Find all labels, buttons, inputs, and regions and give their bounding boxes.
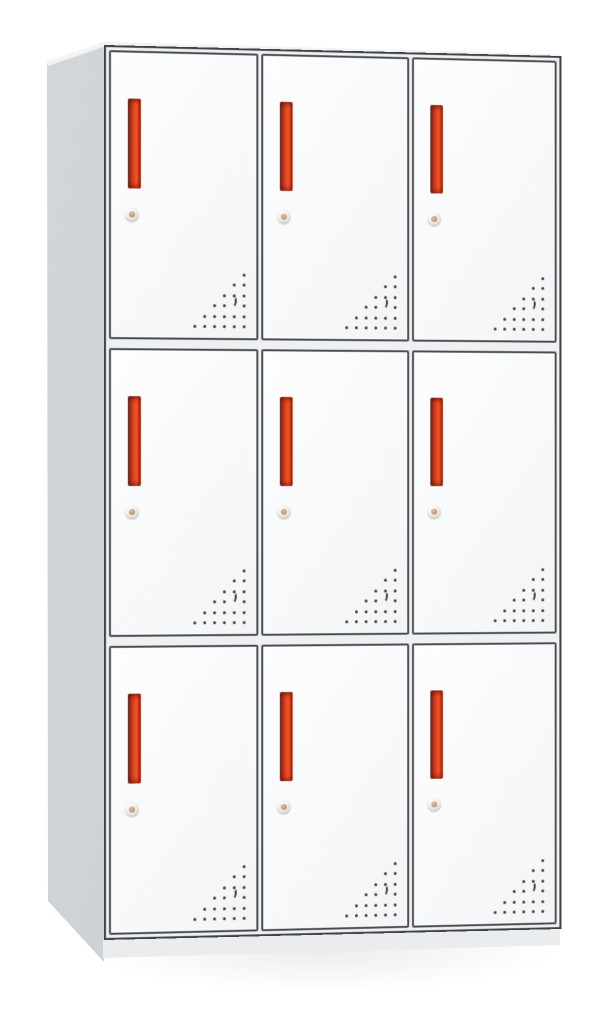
locker-door-r3-c2 [262, 643, 409, 931]
locker-door-r3-c3 [412, 642, 557, 927]
vent-holes [193, 865, 246, 922]
keyhole-lock [427, 797, 440, 811]
vent-holes [493, 277, 544, 332]
vent-dot [522, 307, 525, 310]
vent-dot [393, 579, 396, 582]
vent-crescent-hole [529, 299, 536, 310]
door-handle [430, 398, 443, 486]
vent-dot [513, 609, 516, 612]
keyhole-pin [129, 509, 135, 515]
vent-dot [393, 569, 396, 572]
vent-dot [223, 315, 226, 318]
keyhole-pin [431, 509, 437, 515]
vent-dot [532, 328, 535, 331]
vent-dot [243, 325, 246, 328]
vent-dot [233, 876, 236, 879]
vent-dot [393, 610, 396, 613]
vent-dot [223, 600, 226, 603]
vent-dot [355, 326, 358, 329]
locker-door-r2-c2 [262, 349, 409, 636]
locker-door-r3-c1 [109, 645, 259, 935]
vent-dot [503, 328, 506, 331]
vent-dot [393, 872, 396, 875]
vent-dot [243, 611, 246, 614]
vent-dot [223, 886, 226, 889]
vent-dot [541, 879, 544, 882]
vent-dot [374, 903, 377, 906]
vent-dot [541, 588, 544, 591]
vent-dot [384, 610, 387, 613]
vent-holes [344, 862, 396, 918]
vent-dot [393, 327, 396, 330]
vent-dot [243, 600, 246, 603]
vent-dot [513, 599, 516, 602]
vent-holes [493, 568, 544, 623]
vent-dot [503, 911, 506, 914]
vent-dot [393, 286, 396, 289]
vent-dot [541, 578, 544, 581]
door-handle [280, 692, 293, 781]
vent-dot [213, 325, 216, 328]
keyhole-pin [281, 804, 287, 810]
vent-dot [532, 287, 535, 290]
vent-dot [513, 890, 516, 893]
vent-dot [243, 569, 246, 572]
vent-dot [243, 865, 246, 868]
vent-holes [193, 569, 246, 625]
vent-dot [213, 917, 216, 920]
vent-dot [393, 275, 396, 278]
vent-dot [374, 610, 377, 613]
vent-dot [503, 901, 506, 904]
vent-dot [194, 325, 197, 328]
vent-dot [541, 910, 544, 913]
vent-dot [522, 910, 525, 913]
locker-door-r2-c3 [412, 350, 557, 634]
vent-dot [393, 589, 396, 592]
vent-crescent-hole [381, 298, 388, 309]
vent-dot [532, 318, 535, 321]
vent-dot [243, 284, 246, 287]
vent-dot [223, 325, 226, 328]
vent-dot [364, 914, 367, 917]
vent-dot [374, 589, 377, 592]
vent-dot [522, 900, 525, 903]
vent-dot [345, 326, 348, 329]
vent-dot [364, 620, 367, 623]
vent-dot [223, 907, 226, 910]
vent-dot [364, 904, 367, 907]
vent-dot [364, 600, 367, 603]
vent-dot [374, 316, 377, 319]
vent-dot [541, 568, 544, 571]
vent-dot [243, 917, 246, 920]
vent-dot [213, 304, 216, 307]
keyhole-lock [125, 207, 139, 221]
vent-holes [344, 569, 396, 624]
vent-dot [541, 869, 544, 872]
vent-dot [384, 873, 387, 876]
locker-door-r2-c1 [109, 348, 259, 637]
vent-dot [513, 911, 516, 914]
vent-dot [233, 907, 236, 910]
cabinet-front-face [104, 45, 561, 940]
vent-dot [233, 284, 236, 287]
door-handle [280, 102, 293, 191]
vent-dot [513, 619, 516, 622]
vent-dot [393, 883, 396, 886]
vent-dot [541, 619, 544, 622]
vent-dot [393, 296, 396, 299]
keyhole-pin [281, 214, 287, 220]
vent-dot [522, 328, 525, 331]
vent-dot [355, 610, 358, 613]
vent-dot [213, 621, 216, 624]
vent-dot [355, 620, 358, 623]
vent-dot [233, 580, 236, 583]
door-handle [280, 397, 293, 486]
vent-dot [541, 900, 544, 903]
vent-dot [541, 859, 544, 862]
vent-dot [513, 900, 516, 903]
keyhole-pin [281, 509, 287, 515]
vent-dot [541, 287, 544, 290]
vent-dot [522, 880, 525, 883]
vent-dot [243, 590, 246, 593]
vent-dot [233, 917, 236, 920]
keyhole-lock [125, 802, 139, 816]
vent-dot [541, 277, 544, 280]
door-handle [128, 694, 141, 784]
vent-dot [374, 326, 377, 329]
vent-dot [374, 620, 377, 623]
vent-dot [243, 896, 246, 899]
vent-dot [223, 917, 226, 920]
vent-dot [384, 620, 387, 623]
vent-dot [233, 621, 236, 624]
vent-dot [393, 862, 396, 865]
vent-dot [374, 600, 377, 603]
vent-dot [355, 914, 358, 917]
keyhole-lock [427, 212, 440, 226]
vent-dot [243, 315, 246, 318]
vent-dot [204, 918, 207, 921]
vent-dot [223, 611, 226, 614]
vent-dot [393, 903, 396, 906]
vent-dot [393, 893, 396, 896]
vent-dot [374, 883, 377, 886]
vent-crescent-hole [381, 885, 388, 896]
vent-dot [223, 304, 226, 307]
vent-dot [374, 893, 377, 896]
keyhole-lock [427, 505, 440, 519]
vent-dot [541, 297, 544, 300]
product-photo-locker [0, 0, 605, 1009]
keyhole-pin [431, 801, 437, 807]
vent-dot [213, 611, 216, 614]
door-grid [109, 50, 557, 935]
vent-dot [243, 294, 246, 297]
vent-dot [393, 599, 396, 602]
vent-dot [374, 306, 377, 309]
vent-dot [204, 325, 207, 328]
vent-dot [393, 316, 396, 319]
vent-holes [344, 275, 396, 331]
vent-dot [513, 307, 516, 310]
vent-dot [522, 318, 525, 321]
door-handle [430, 690, 443, 779]
vent-dot [522, 589, 525, 592]
vent-dot [393, 620, 396, 623]
vent-dot [503, 609, 506, 612]
vent-dot [522, 297, 525, 300]
keyhole-lock [125, 505, 139, 519]
vent-dot [374, 296, 377, 299]
keyhole-lock [277, 210, 291, 224]
vent-crescent-hole [529, 882, 536, 893]
vent-holes [493, 859, 544, 915]
vent-dot [233, 315, 236, 318]
vent-dot [503, 619, 506, 622]
vent-dot [541, 328, 544, 331]
vent-dot [194, 621, 197, 624]
vent-dot [532, 609, 535, 612]
vent-dot [494, 328, 497, 331]
vent-dot [541, 599, 544, 602]
vent-dot [204, 315, 207, 318]
vent-dot [345, 620, 348, 623]
vent-dot [213, 315, 216, 318]
vent-dot [532, 619, 535, 622]
door-handle [128, 99, 141, 189]
vent-dot [243, 305, 246, 308]
vent-dot [223, 590, 226, 593]
vent-dot [243, 580, 246, 583]
vent-crescent-hole [381, 591, 388, 602]
vent-dot [204, 621, 207, 624]
vent-dot [393, 306, 396, 309]
vent-crescent-hole [529, 590, 536, 601]
vent-dot [494, 619, 497, 622]
vent-dot [223, 621, 226, 624]
vent-dot [364, 610, 367, 613]
vent-dot [532, 578, 535, 581]
keyhole-pin [129, 806, 135, 812]
vent-dot [522, 890, 525, 893]
vent-dot [204, 907, 207, 910]
locker-door-r1-c3 [412, 57, 557, 342]
vent-dot [384, 579, 387, 582]
locker-door-r1-c1 [109, 50, 259, 340]
vent-dot [194, 918, 197, 921]
vent-holes [193, 273, 246, 329]
vent-dot [213, 601, 216, 604]
vent-crescent-hole [231, 888, 238, 899]
vent-dot [364, 326, 367, 329]
vent-dot [213, 897, 216, 900]
vent-dot [243, 621, 246, 624]
vent-dot [393, 913, 396, 916]
vent-dot [384, 286, 387, 289]
vent-dot [522, 619, 525, 622]
vent-dot [223, 294, 226, 297]
vent-dot [233, 611, 236, 614]
vent-dot [503, 317, 506, 320]
vent-dot [522, 609, 525, 612]
vent-dot [355, 904, 358, 907]
vent-dot [522, 599, 525, 602]
vent-dot [204, 611, 207, 614]
vent-dot [384, 327, 387, 330]
vent-dot [243, 906, 246, 909]
vent-dot [364, 306, 367, 309]
vent-dot [384, 914, 387, 917]
keyhole-lock [277, 800, 291, 814]
vent-dot [243, 875, 246, 878]
vent-dot [364, 316, 367, 319]
vent-dot [532, 900, 535, 903]
vent-dot [532, 869, 535, 872]
keyhole-pin [431, 216, 437, 222]
vent-dot [223, 897, 226, 900]
vent-dot [513, 328, 516, 331]
vent-dot [384, 903, 387, 906]
vent-dot [355, 316, 358, 319]
vent-crescent-hole [231, 592, 238, 603]
door-handle [430, 105, 443, 194]
vent-dot [541, 609, 544, 612]
vent-dot [513, 318, 516, 321]
door-handle [128, 396, 141, 486]
vent-dot [233, 325, 236, 328]
vent-dot [243, 886, 246, 889]
vent-dot [541, 318, 544, 321]
keyhole-pin [129, 211, 135, 217]
vent-dot [532, 910, 535, 913]
keyhole-lock [277, 505, 291, 519]
vent-dot [213, 907, 216, 910]
vent-dot [541, 890, 544, 893]
vent-dot [345, 914, 348, 917]
vent-dot [541, 308, 544, 311]
vent-dot [364, 893, 367, 896]
locker-door-r1-c2 [262, 54, 409, 342]
vent-dot [494, 911, 497, 914]
vent-dot [243, 274, 246, 277]
vent-dot [384, 316, 387, 319]
vent-dot [374, 914, 377, 917]
vent-crescent-hole [231, 296, 238, 308]
